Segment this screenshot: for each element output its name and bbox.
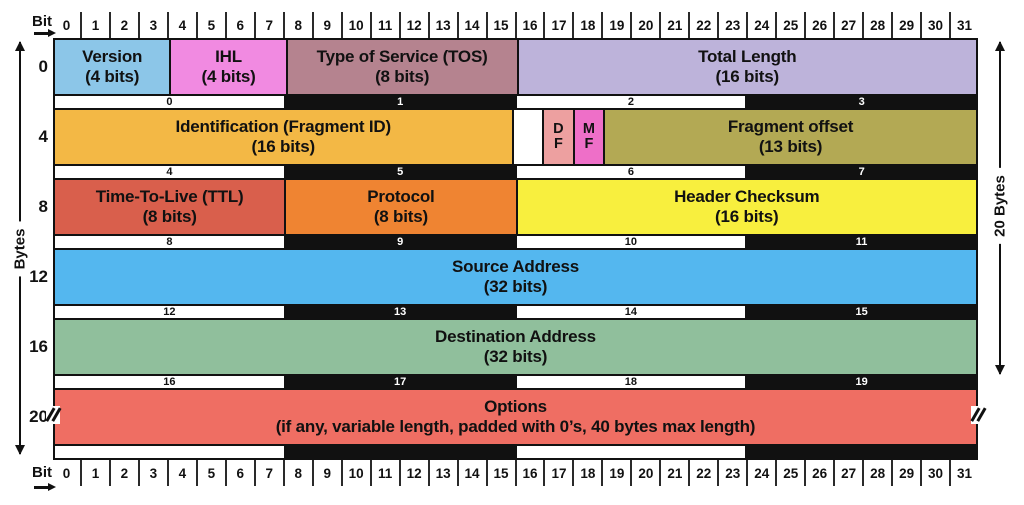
field-label-line: (16 bits) [716, 67, 779, 87]
byte-number-cell [517, 446, 746, 458]
bit-number: 20 [632, 460, 661, 486]
field-label-line: Type of Service (TOS) [317, 47, 488, 67]
row-bytes-12-15: 12131415 [55, 306, 976, 318]
bit-number: 5 [198, 12, 227, 38]
bit-number: 3 [140, 460, 169, 486]
bit-number: 1 [82, 460, 111, 486]
bit-number: 31 [951, 12, 978, 38]
byte-number-cell: 1 [286, 96, 515, 108]
bit-direction-arrow-top-icon [34, 32, 49, 35]
field-label-line: (13 bits) [759, 137, 822, 157]
row-word-0: Version(4 bits)IHL(4 bits)Type of Servic… [55, 40, 976, 94]
byte-number-cell: 11 [747, 236, 976, 248]
bit-number: 19 [603, 12, 632, 38]
field-df-flag: DF [544, 110, 573, 164]
field-label-line: Source Address [452, 257, 579, 277]
bit-number: 0 [53, 460, 82, 486]
row-bytes-4-7: 4567 [55, 166, 976, 178]
bit-number: 18 [574, 12, 603, 38]
bit-number: 10 [343, 12, 372, 38]
bit-number: 12 [401, 460, 430, 486]
field-label-line: Options [484, 397, 547, 417]
bit-number: 5 [198, 460, 227, 486]
field-options: Options(if any, variable length, padded … [55, 390, 976, 444]
bit-number: 13 [430, 12, 459, 38]
field-label-line: (4 bits) [85, 67, 139, 87]
bit-number: 28 [864, 460, 893, 486]
bit-number: 18 [574, 460, 603, 486]
bit-number: 9 [314, 460, 343, 486]
byte-number-cell: 6 [517, 166, 746, 178]
bit-number: 25 [777, 12, 806, 38]
field-label-line: (8 bits) [374, 207, 428, 227]
field-label-line: (32 bits) [484, 277, 547, 297]
byte-number-cell: 15 [747, 306, 976, 318]
bit-axis-label-top: Bit [32, 13, 52, 30]
field-version: Version(4 bits) [55, 40, 169, 94]
bit-number: 19 [603, 460, 632, 486]
byte-number-cell [747, 446, 976, 458]
byte-offset-label: 4 [18, 126, 48, 148]
field-label-line: (16 bits) [715, 207, 778, 227]
field-label-line: (8 bits) [143, 207, 197, 227]
ipv4-header-diagram: Bit 012345678910111213141516171819202122… [0, 0, 1024, 505]
byte-offset-label: 20 [18, 406, 48, 428]
bit-number: 20 [632, 12, 661, 38]
bit-number: 21 [661, 12, 690, 38]
field-label-line: (if any, variable length, padded with 0’… [276, 417, 756, 437]
bit-number: 1 [82, 12, 111, 38]
bit-number: 30 [922, 12, 951, 38]
field-label-line: Total Length [698, 47, 796, 67]
byte-number-cell: 7 [747, 166, 976, 178]
row-word-3: Source Address(32 bits) [55, 250, 976, 304]
bit-number: 22 [690, 460, 719, 486]
field-label-line: F [554, 137, 563, 152]
field-mf-flag: MF [575, 110, 604, 164]
bit-axis-bottom: 0123456789101112131415161718192021222324… [53, 460, 978, 486]
byte-number-cell [286, 446, 515, 458]
byte-number-cell: 19 [747, 376, 976, 388]
byte-number-cell: 4 [55, 166, 284, 178]
bit-number: 15 [488, 460, 517, 486]
field-label-line: (16 bits) [252, 137, 315, 157]
bytes-axis-label: Bytes [10, 222, 31, 277]
field-ihl: IHL(4 bits) [171, 40, 285, 94]
bit-number: 7 [256, 12, 285, 38]
field-label-line: M [583, 122, 595, 137]
byte-number-cell: 9 [286, 236, 515, 248]
byte-number-cell: 18 [517, 376, 746, 388]
field-label-line: Fragment offset [728, 117, 853, 137]
field-label-line: Identification (Fragment ID) [176, 117, 391, 137]
bit-number: 11 [372, 460, 401, 486]
row-word-4: Destination Address(32 bits) [55, 320, 976, 374]
field-identification: Identification (Fragment ID)(16 bits) [55, 110, 512, 164]
bit-number: 0 [53, 12, 82, 38]
byte-number-cell: 16 [55, 376, 284, 388]
field-label-line: F [584, 137, 593, 152]
row-word-1: Identification (Fragment ID)(16 bits)DFM… [55, 110, 976, 164]
bit-number: 16 [517, 12, 546, 38]
break-mark-left-icon [46, 406, 60, 424]
bit-number: 3 [140, 12, 169, 38]
byte-number-cell: 13 [286, 306, 515, 318]
bit-number: 29 [893, 12, 922, 38]
bit-number: 7 [256, 460, 285, 486]
byte-number-cell: 0 [55, 96, 284, 108]
header-table: Version(4 bits)IHL(4 bits)Type of Servic… [53, 38, 978, 460]
bit-number: 22 [690, 12, 719, 38]
field-header-checksum: Header Checksum(16 bits) [518, 180, 977, 234]
bit-number: 23 [719, 460, 748, 486]
byte-number-cell: 17 [286, 376, 515, 388]
field-label-line: Protocol [367, 187, 434, 207]
byte-number-cell: 8 [55, 236, 284, 248]
field-fragment-offset: Fragment offset(13 bits) [605, 110, 976, 164]
byte-number-cell: 12 [55, 306, 284, 318]
field-source-address: Source Address(32 bits) [55, 250, 976, 304]
bit-number: 24 [748, 460, 777, 486]
field-label-line: IHL [215, 47, 242, 67]
bit-number: 12 [401, 12, 430, 38]
field-label-line: Time-To-Live (TTL) [96, 187, 244, 207]
byte-number-cell: 2 [517, 96, 746, 108]
bit-number: 4 [169, 460, 198, 486]
field-type-of-service: Type of Service (TOS)(8 bits) [288, 40, 517, 94]
row-bytes-8-11: 891011 [55, 236, 976, 248]
bit-number: 14 [459, 12, 488, 38]
row-word-5: Options(if any, variable length, padded … [55, 390, 976, 444]
break-mark-right-icon [971, 406, 985, 424]
bit-number: 6 [227, 460, 256, 486]
header-size-label: 20 Bytes [990, 168, 1011, 244]
bit-number: 23 [719, 12, 748, 38]
bit-number: 13 [430, 460, 459, 486]
byte-number-cell: 14 [517, 306, 746, 318]
bit-number: 10 [343, 460, 372, 486]
bit-number: 4 [169, 12, 198, 38]
byte-number-cell: 5 [286, 166, 515, 178]
field-reserved-bit [514, 110, 543, 164]
field-label-line: Destination Address [435, 327, 596, 347]
field-protocol: Protocol(8 bits) [286, 180, 515, 234]
field-label-line: Header Checksum [674, 187, 819, 207]
bit-number: 31 [951, 460, 978, 486]
bit-number: 14 [459, 460, 488, 486]
byte-offset-label: 16 [18, 336, 48, 358]
row-word-2: Time-To-Live (TTL)(8 bits)Protocol(8 bit… [55, 180, 976, 234]
byte-offset-label: 0 [18, 56, 48, 78]
byte-number-cell: 3 [747, 96, 976, 108]
bit-number: 21 [661, 460, 690, 486]
field-label-line: (8 bits) [375, 67, 429, 87]
bit-number: 26 [806, 12, 835, 38]
row-bytes-unlabeled [55, 446, 976, 458]
bit-number: 17 [545, 460, 574, 486]
bit-number: 30 [922, 460, 951, 486]
bit-axis-top: 0123456789101112131415161718192021222324… [53, 12, 978, 38]
byte-number-cell [55, 446, 284, 458]
bit-number: 27 [835, 460, 864, 486]
field-label-line: D [553, 122, 563, 137]
bit-number: 29 [893, 460, 922, 486]
byte-offset-label: 8 [18, 196, 48, 218]
row-bytes-0-3: 0123 [55, 96, 976, 108]
field-label-line: Version [82, 47, 142, 67]
bit-number: 2 [111, 12, 140, 38]
bit-number: 15 [488, 12, 517, 38]
bit-number: 25 [777, 460, 806, 486]
bit-number: 24 [748, 12, 777, 38]
field-time-to-live: Time-To-Live (TTL)(8 bits) [55, 180, 284, 234]
bit-number: 8 [285, 460, 314, 486]
bit-number: 11 [372, 12, 401, 38]
bit-axis-label-bottom: Bit [32, 464, 52, 481]
bit-number: 8 [285, 12, 314, 38]
field-label-line: (32 bits) [484, 347, 547, 367]
bit-number: 2 [111, 460, 140, 486]
bit-direction-arrow-bottom-icon [34, 486, 49, 489]
bit-number: 17 [545, 12, 574, 38]
field-total-length: Total Length(16 bits) [519, 40, 977, 94]
byte-number-cell: 10 [517, 236, 746, 248]
bit-number: 26 [806, 460, 835, 486]
row-bytes-16-19: 16171819 [55, 376, 976, 388]
field-destination-address: Destination Address(32 bits) [55, 320, 976, 374]
field-label-line: (4 bits) [202, 67, 256, 87]
bit-number: 16 [517, 460, 546, 486]
bit-number: 9 [314, 12, 343, 38]
bit-number: 28 [864, 12, 893, 38]
bit-number: 6 [227, 12, 256, 38]
bit-number: 27 [835, 12, 864, 38]
